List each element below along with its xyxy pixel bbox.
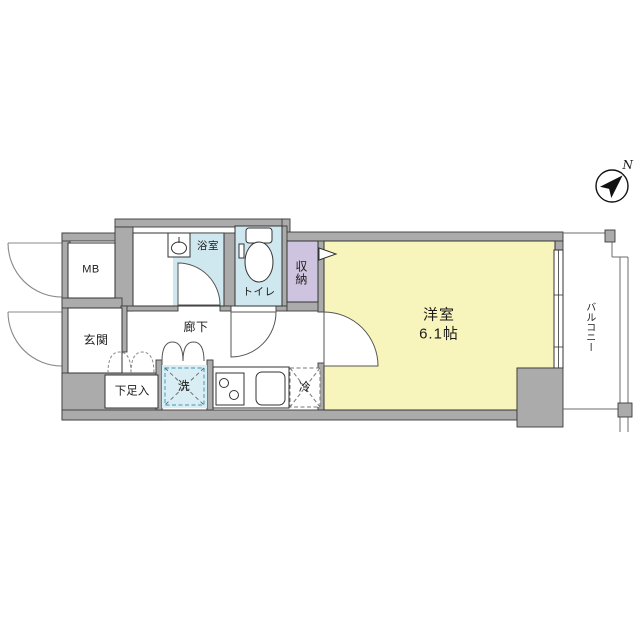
compass bbox=[596, 170, 628, 202]
toilet-door bbox=[231, 312, 276, 357]
washer-closet-doors bbox=[162, 342, 204, 361]
balcony-label: バルコニー bbox=[583, 302, 595, 352]
sink-icon bbox=[256, 372, 285, 405]
entrance-door-swing bbox=[8, 312, 62, 366]
hallway-label: 廊下 bbox=[183, 321, 208, 335]
burner-icon bbox=[220, 379, 229, 388]
bathroom-label: 浴室 bbox=[197, 240, 219, 252]
kitchen-counter bbox=[213, 367, 289, 408]
washer-label: 洗 bbox=[178, 380, 191, 394]
meter-box-label: MB bbox=[82, 264, 100, 277]
structural-blocks bbox=[517, 368, 563, 427]
toilet-label: トイレ bbox=[243, 286, 276, 298]
entrance-label: 玄関 bbox=[83, 334, 108, 348]
fridge-label: 冷 bbox=[299, 381, 312, 395]
balcony-outline bbox=[563, 233, 628, 432]
burner-icon bbox=[230, 391, 239, 400]
floorplan-drawing bbox=[0, 0, 640, 640]
western-room-size-label: 6.1帖 bbox=[419, 325, 459, 342]
wash-basin-icon bbox=[168, 233, 190, 257]
western-room-label: 洋室 bbox=[423, 306, 455, 323]
storage-label: 収納 bbox=[293, 260, 307, 286]
meterbox-door-swing bbox=[8, 243, 62, 297]
window bbox=[554, 250, 563, 368]
floorplan-canvas: MB 玄関 下足入 廊下 浴室 トイレ 収納 洗 冷 洋室 6.1帖 バルコニー… bbox=[0, 0, 640, 640]
shoe-storage-label: 下足入 bbox=[115, 385, 150, 398]
stove-icon bbox=[216, 373, 244, 405]
compass-north-label: N bbox=[623, 159, 634, 173]
